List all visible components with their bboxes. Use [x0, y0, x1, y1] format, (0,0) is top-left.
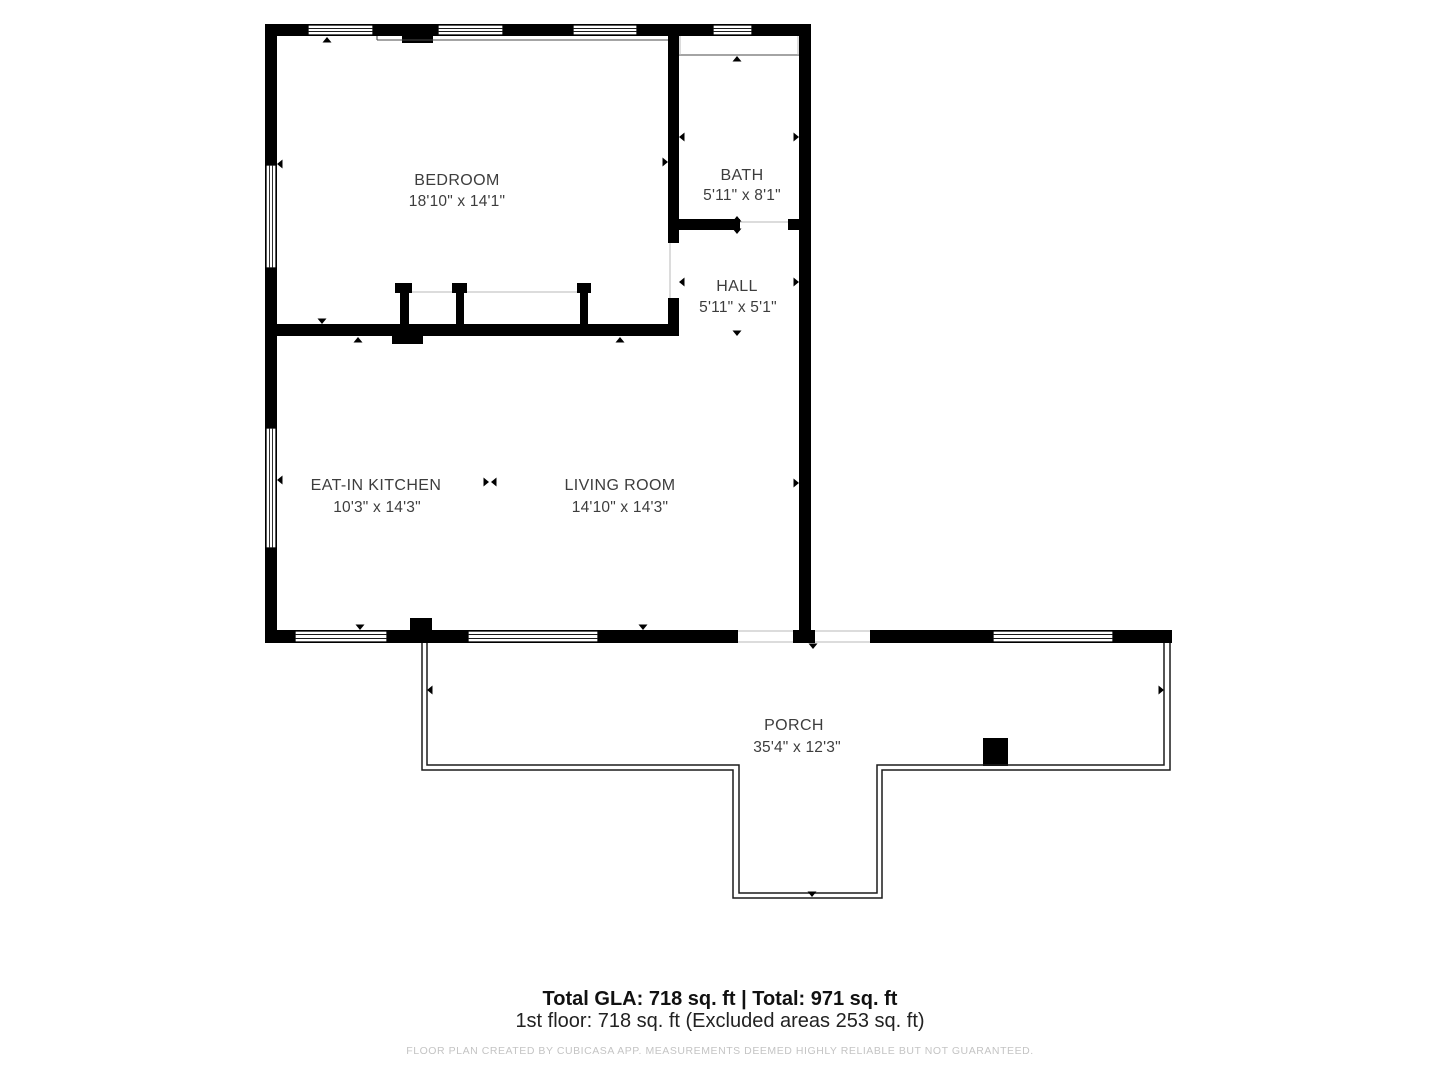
dimension-marker-left: [277, 160, 283, 169]
porch-outline-outer: [422, 643, 1170, 898]
dimension-marker-down: [809, 644, 818, 650]
room-label-living: LIVING ROOM: [564, 477, 675, 494]
window: [438, 25, 503, 35]
dimension-marker-down: [356, 625, 365, 631]
wall-right: [799, 24, 811, 643]
first-floor-area-text: 1st floor: 718 sq. ft (Excluded areas 25…: [515, 1010, 924, 1032]
porch-post: [983, 738, 1008, 766]
dimension-marker-right: [794, 133, 800, 142]
closet-wall-stub-cap: [577, 283, 591, 293]
dimension-marker-up: [323, 37, 332, 43]
window: [573, 25, 637, 35]
wall-bath-hall-stub: [788, 219, 799, 230]
closet-wall-stub: [400, 293, 409, 326]
closet-wall-stub: [456, 293, 464, 326]
disclaimer-text: FLOOR PLAN CREATED BY CUBICASA APP. MEAS…: [406, 1045, 1034, 1057]
dimension-marker-pair-left: [491, 478, 497, 487]
closet-wall-stub-cap: [452, 283, 467, 293]
window-living-bottom: [468, 631, 598, 642]
dimension-marker-right: [663, 158, 669, 167]
room-label-porch: PORCH: [764, 717, 824, 734]
chimney-bump-bedroom-south: [392, 336, 423, 344]
room-dims-kitchen: 10'3" x 14'3": [333, 499, 421, 516]
dimension-marker-pair-right: [484, 478, 490, 487]
window-kitchen-bottom: [295, 631, 387, 642]
dimension-marker-up: [733, 56, 742, 62]
dimension-marker-left: [427, 686, 433, 695]
dimension-marker-down: [639, 625, 648, 631]
closet-wall-stub-cap: [395, 283, 412, 293]
dimension-marker-door-down: [733, 229, 742, 235]
wall-bedroom-south: [265, 324, 677, 336]
dimension-marker-right: [794, 479, 800, 488]
detail-lines: [377, 36, 870, 642]
dimension-marker-up: [616, 337, 625, 343]
total-area-text: Total GLA: 718 sq. ft | Total: 971 sq. f…: [543, 988, 898, 1010]
room-labels: BEDROOM 18'10" x 14'1" BATH 5'11" x 8'1"…: [311, 167, 841, 756]
floor-plan-drawing: BEDROOM 18'10" x 14'1" BATH 5'11" x 8'1"…: [0, 0, 1440, 1080]
dimension-marker-down: [808, 892, 817, 898]
room-label-hall: HALL: [716, 278, 758, 295]
dimension-marker-right: [794, 278, 800, 287]
room-dims-bath: 5'11" x 8'1": [703, 187, 781, 204]
room-label-bedroom: BEDROOM: [414, 172, 499, 189]
wall-bedroom-bath-divider: [668, 30, 679, 243]
wall-bath-hall-divider: [668, 219, 740, 230]
window-bedroom-left: [266, 165, 276, 268]
window-porch-back: [993, 631, 1113, 642]
dimension-marker-up: [354, 337, 363, 343]
room-dims-porch: 35'4" x 12'3": [753, 739, 841, 756]
dimension-marker-down: [318, 319, 327, 325]
window-kitchen-left: [266, 428, 276, 548]
closet-wall-stub: [580, 293, 588, 326]
room-label-bath: BATH: [720, 167, 763, 184]
wall-bottom-junction: [793, 630, 815, 643]
dimension-marker-door-up: [733, 216, 742, 222]
window: [308, 25, 373, 35]
room-dims-bedroom: 18'10" x 14'1": [409, 193, 505, 210]
dimension-marker-right: [1159, 686, 1165, 695]
window-bath: [713, 25, 752, 35]
dimension-marker-left: [679, 278, 685, 287]
dimension-markers: [277, 37, 1164, 897]
room-dims-hall: 5'11" x 5'1": [699, 299, 777, 316]
walls: [265, 24, 1172, 766]
floor-plan-page: BEDROOM 18'10" x 14'1" BATH 5'11" x 8'1"…: [0, 0, 1440, 1080]
dimension-marker-left: [679, 133, 685, 142]
chimney-bump-bottom: [410, 618, 432, 631]
dimension-marker-left: [277, 476, 283, 485]
dimension-marker-down: [733, 331, 742, 337]
porch-outline: [422, 643, 1170, 898]
room-label-kitchen: EAT-IN KITCHEN: [311, 477, 442, 494]
porch-outline-inner: [427, 643, 1164, 893]
footer: Total GLA: 718 sq. ft | Total: 971 sq. f…: [406, 988, 1034, 1057]
room-dims-living: 14'10" x 14'3": [572, 499, 668, 516]
